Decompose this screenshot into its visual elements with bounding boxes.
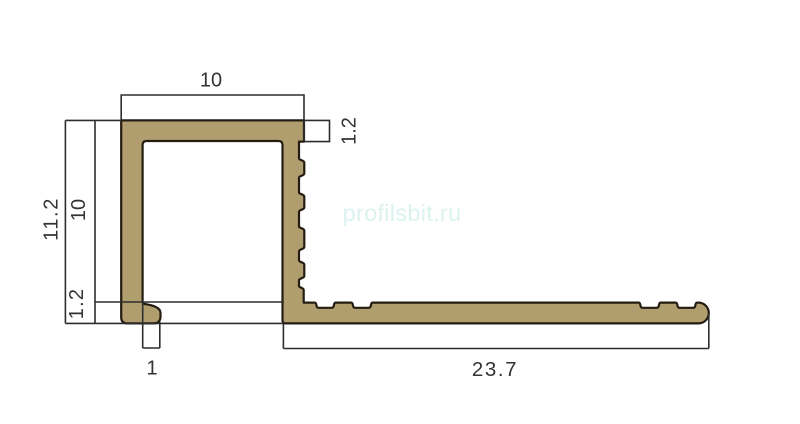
- svg-text:profilsbit.ru: profilsbit.ru: [343, 200, 462, 226]
- svg-text:1: 1: [146, 358, 157, 380]
- svg-text:1.2: 1.2: [66, 288, 88, 319]
- svg-text:23.7: 23.7: [472, 358, 518, 381]
- svg-text:10: 10: [200, 70, 222, 92]
- svg-text:11.2: 11.2: [41, 197, 63, 241]
- svg-text:1.2: 1.2: [339, 117, 361, 145]
- svg-text:10: 10: [68, 199, 90, 221]
